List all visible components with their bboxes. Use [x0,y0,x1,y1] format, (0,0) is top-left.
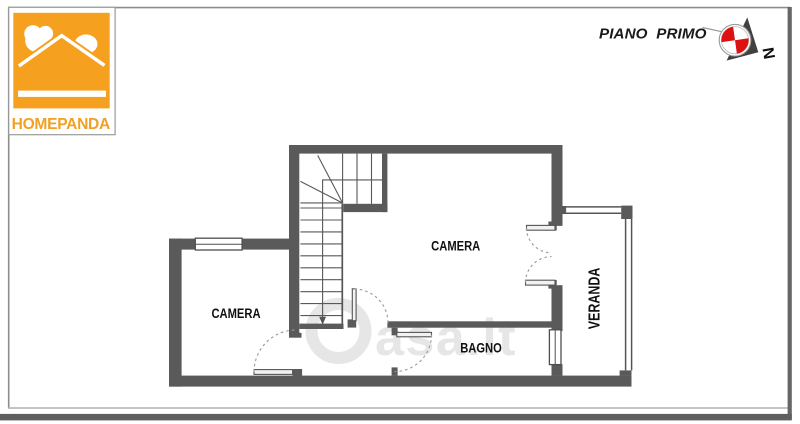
svg-text:asa.it: asa.it [375,309,517,367]
svg-text:HOMEPANDA: HOMEPANDA [12,116,110,133]
svg-text:CAMERA: CAMERA [431,238,480,253]
svg-text:PIANO PRIMO: PIANO PRIMO [599,25,707,42]
svg-text:BAGNO: BAGNO [460,340,502,355]
svg-text:VERANDA: VERANDA [586,268,604,330]
svg-text:CAMERA: CAMERA [211,306,260,321]
